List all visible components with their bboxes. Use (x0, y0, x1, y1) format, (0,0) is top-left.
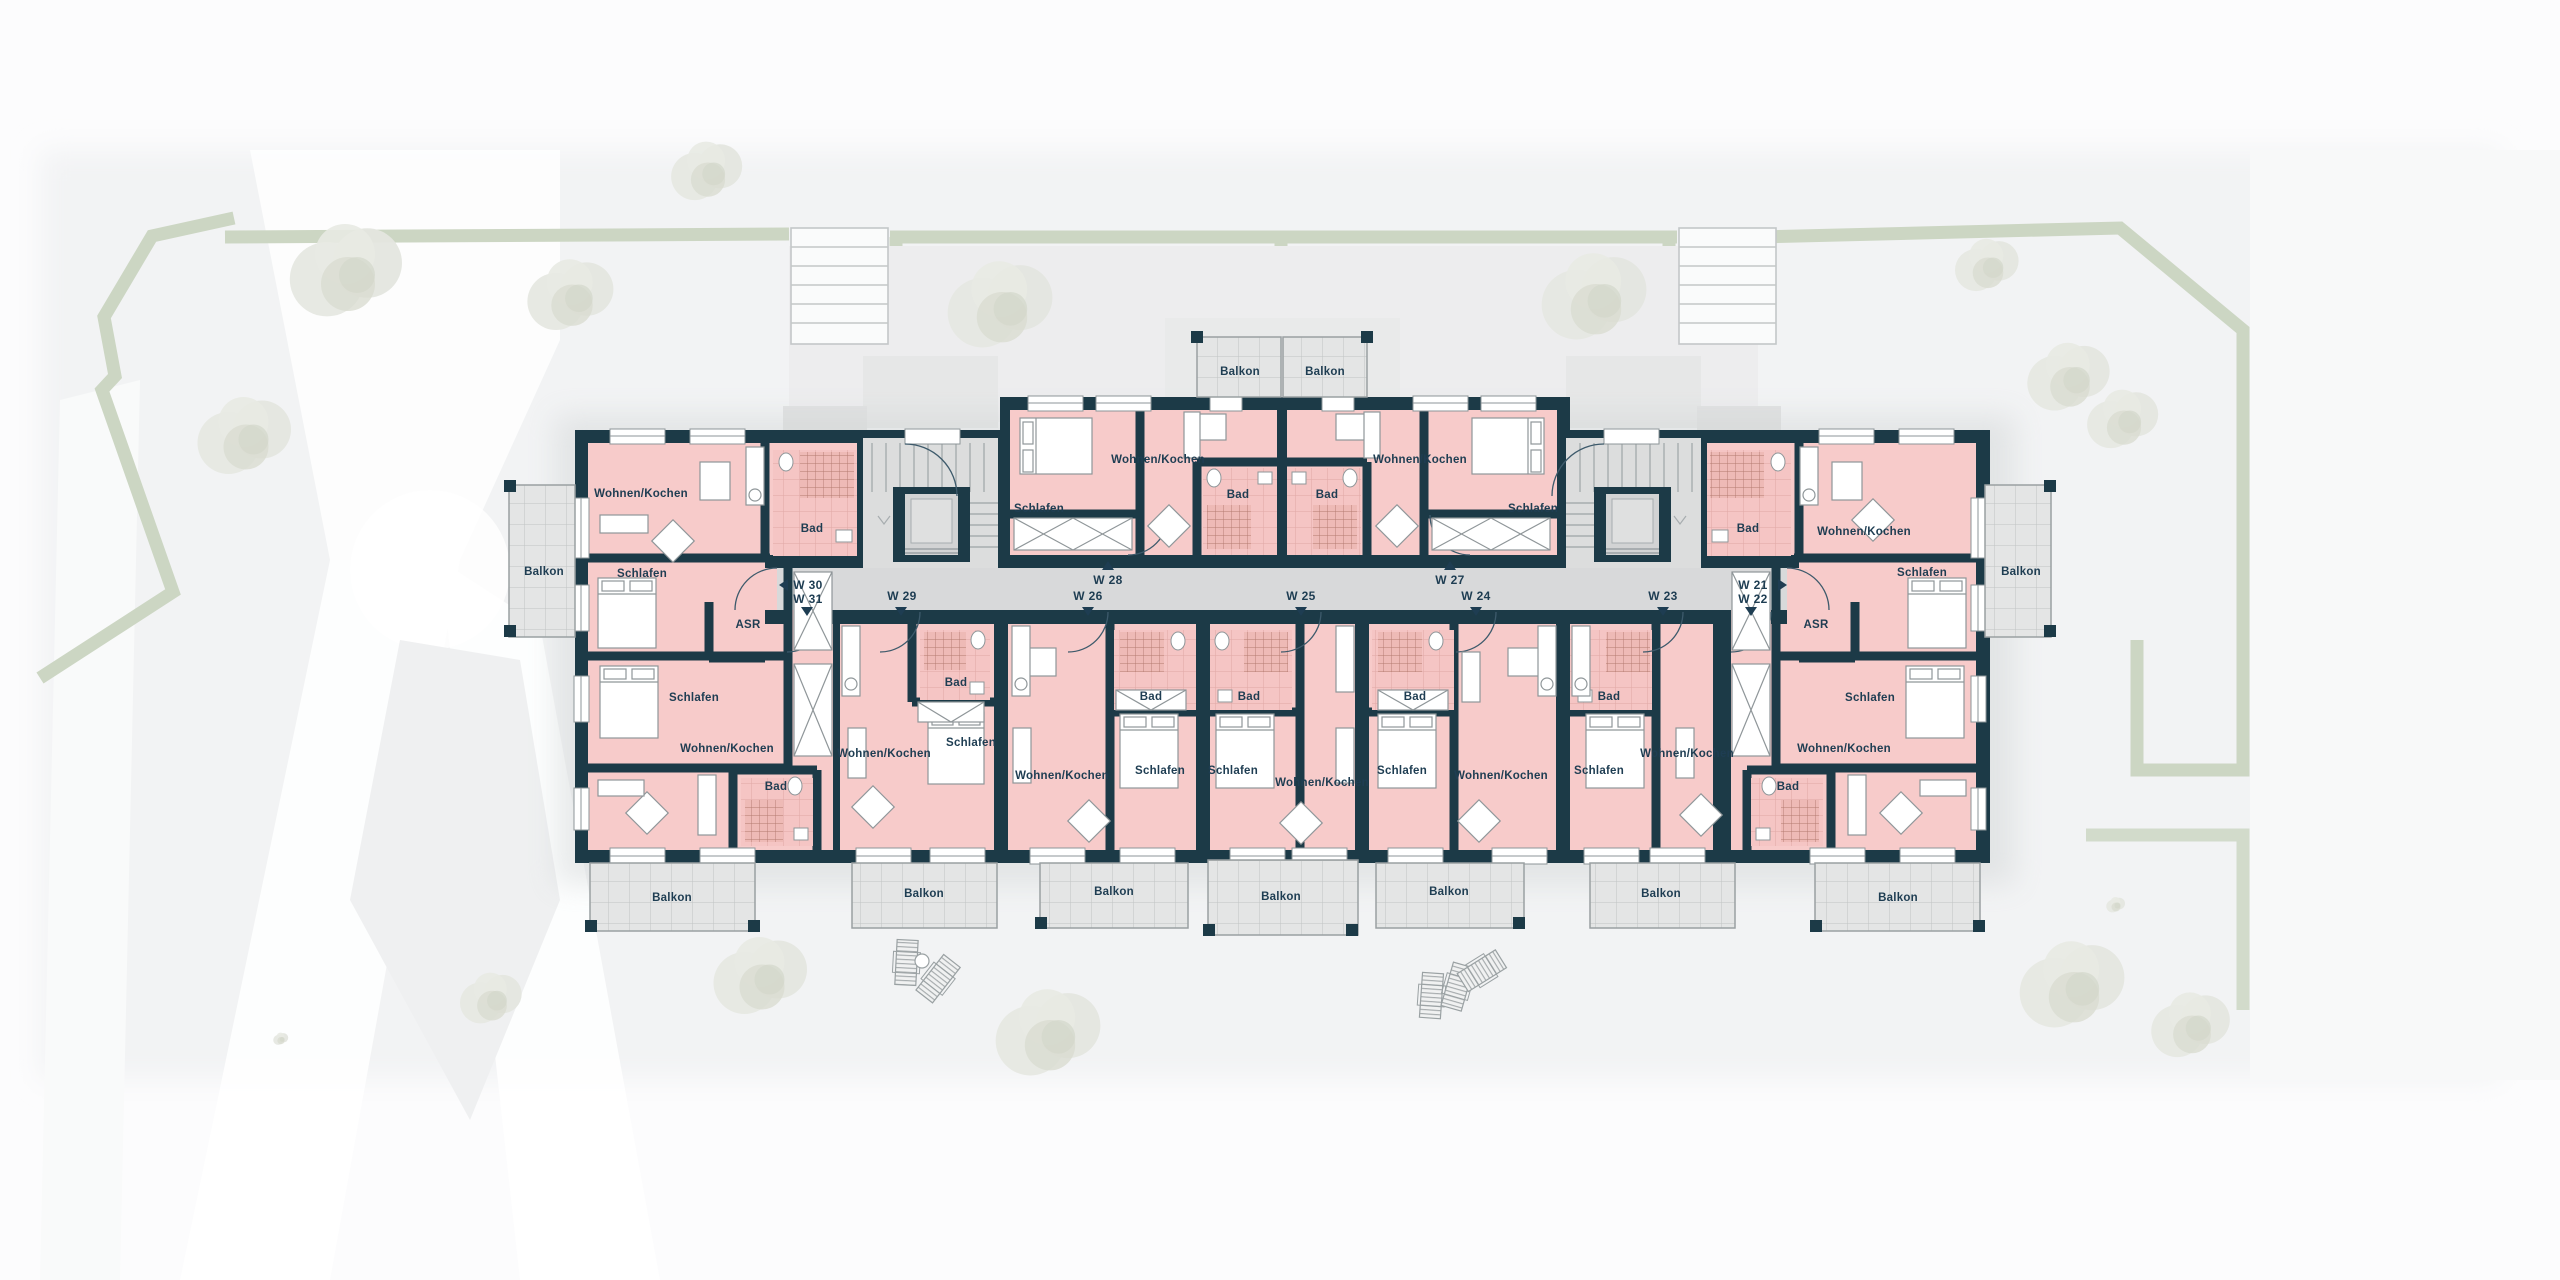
balcony-top-w28: Balkon (1220, 366, 1260, 378)
boundary-north-1 (225, 234, 789, 237)
entrance-door-right (1604, 429, 1659, 444)
room-w21-schlafen: Schlafen (1897, 567, 1947, 579)
balcony (1191, 331, 1281, 397)
center-party-wall (1277, 410, 1287, 555)
floorplan-page: Wohnen/KochenSchlafenBadASRSchlafenWohne… (0, 0, 2560, 1280)
unit-w31: W 31 (793, 592, 822, 606)
room-w25-living: Wohnen/Kochen (1275, 777, 1369, 789)
unit-w23: W 23 (1648, 589, 1677, 603)
unit-w30: W 30 (793, 578, 822, 592)
bathroom-unit (1287, 468, 1361, 555)
room-w31-bad: Bad (765, 781, 787, 793)
balcony-left: Balkon (524, 566, 564, 578)
room-w28-schlafen: Schlafen (1014, 503, 1064, 515)
room-w25-schlafen: Schlafen (1208, 765, 1258, 777)
room-w29-living: Wohnen/Kochen (837, 748, 931, 760)
room-w30-schlafen: Schlafen (617, 568, 667, 580)
balcony (1985, 480, 2056, 637)
room-w25-bad: Bad (1238, 691, 1260, 703)
unit-w28: W 28 (1093, 573, 1122, 587)
garden-table-icon (915, 954, 929, 968)
balcony-b3: Balkon (1094, 886, 1134, 898)
unit-w22: W 22 (1738, 592, 1767, 606)
room-w26-schlafen: Schlafen (1135, 765, 1185, 777)
bed (1906, 666, 1964, 738)
bathroom-unit (1203, 468, 1277, 555)
balcony (504, 480, 575, 637)
balcony-b5: Balkon (1429, 886, 1469, 898)
balcony-b7: Balkon (1878, 892, 1918, 904)
room-w28-living: Wohnen/Kochen (1111, 454, 1205, 466)
unit-w24: W 24 (1461, 589, 1490, 603)
balcony-b4: Balkon (1261, 891, 1301, 903)
room-w24-schlafen: Schlafen (1377, 765, 1427, 777)
room-w30-living: Wohnen/Kochen (594, 488, 688, 500)
room-w24-bad: Bad (1404, 691, 1426, 703)
bed (1908, 578, 1966, 648)
room-w29-schlafen: Schlafen (946, 737, 996, 749)
room-w26-living: Wohnen/Kochen (1015, 770, 1109, 782)
room-w24-living: Wohnen/Kochen (1454, 770, 1548, 782)
balcony-b2: Balkon (904, 888, 944, 900)
room-w23-schlafen: Schlafen (1574, 765, 1624, 777)
entrance-door-left (905, 429, 960, 444)
garden-stairs-right (1679, 228, 1776, 344)
room-w21-bad: Bad (1737, 523, 1759, 535)
unit-w21: W 21 (1738, 578, 1767, 592)
room-w2122-asr: ASR (1803, 619, 1828, 631)
room-w23-bad: Bad (1598, 691, 1620, 703)
room-w30-bad: Bad (801, 523, 823, 535)
room-w27-bad: Bad (1316, 489, 1338, 501)
room-w27-schlafen: Schlafen (1508, 503, 1558, 515)
floorplan-canvas: Wohnen/KochenSchlafenBadASRSchlafenWohne… (0, 0, 2560, 1280)
corridor (777, 568, 1787, 610)
room-w22-bad: Bad (1777, 781, 1799, 793)
unit-w25: W 25 (1286, 589, 1315, 603)
building (504, 331, 2056, 936)
unit-w29: W 29 (887, 589, 916, 603)
room-w22-schlafen: Schlafen (1845, 692, 1895, 704)
bathroom-unit (920, 630, 990, 700)
balcony-b1: Balkon (652, 892, 692, 904)
room-w3031-asr: ASR (735, 619, 760, 631)
room-w29-bad: Bad (945, 677, 967, 689)
balcony-b6: Balkon (1641, 888, 1681, 900)
room-w31-schlafen: Schlafen (669, 692, 719, 704)
balcony-top-w27: Balkon (1305, 366, 1345, 378)
garden-stairs-left (791, 228, 888, 344)
bathroom-unit (1707, 450, 1791, 556)
bed (1472, 418, 1544, 474)
unit-w26: W 26 (1073, 589, 1102, 603)
balcony (1283, 331, 1373, 397)
room-w27-living: Wohnen/Kochen (1373, 454, 1467, 466)
unit-w27: W 27 (1435, 573, 1464, 587)
bed (600, 666, 658, 738)
room-w22-living: Wohnen/Kochen (1797, 743, 1891, 755)
room-w21-living: Wohnen/Kochen (1817, 526, 1911, 538)
bathroom-unit (773, 450, 857, 556)
balcony-right: Balkon (2001, 566, 2041, 578)
bed (1020, 418, 1092, 474)
room-w31-living: Wohnen/Kochen (680, 743, 774, 755)
ground-right (2250, 150, 2560, 1080)
room-w23-living: Wohnen/Kochen (1640, 748, 1734, 760)
room-w28-bad: Bad (1227, 489, 1249, 501)
bed (598, 578, 656, 648)
room-w26-bad: Bad (1140, 691, 1162, 703)
